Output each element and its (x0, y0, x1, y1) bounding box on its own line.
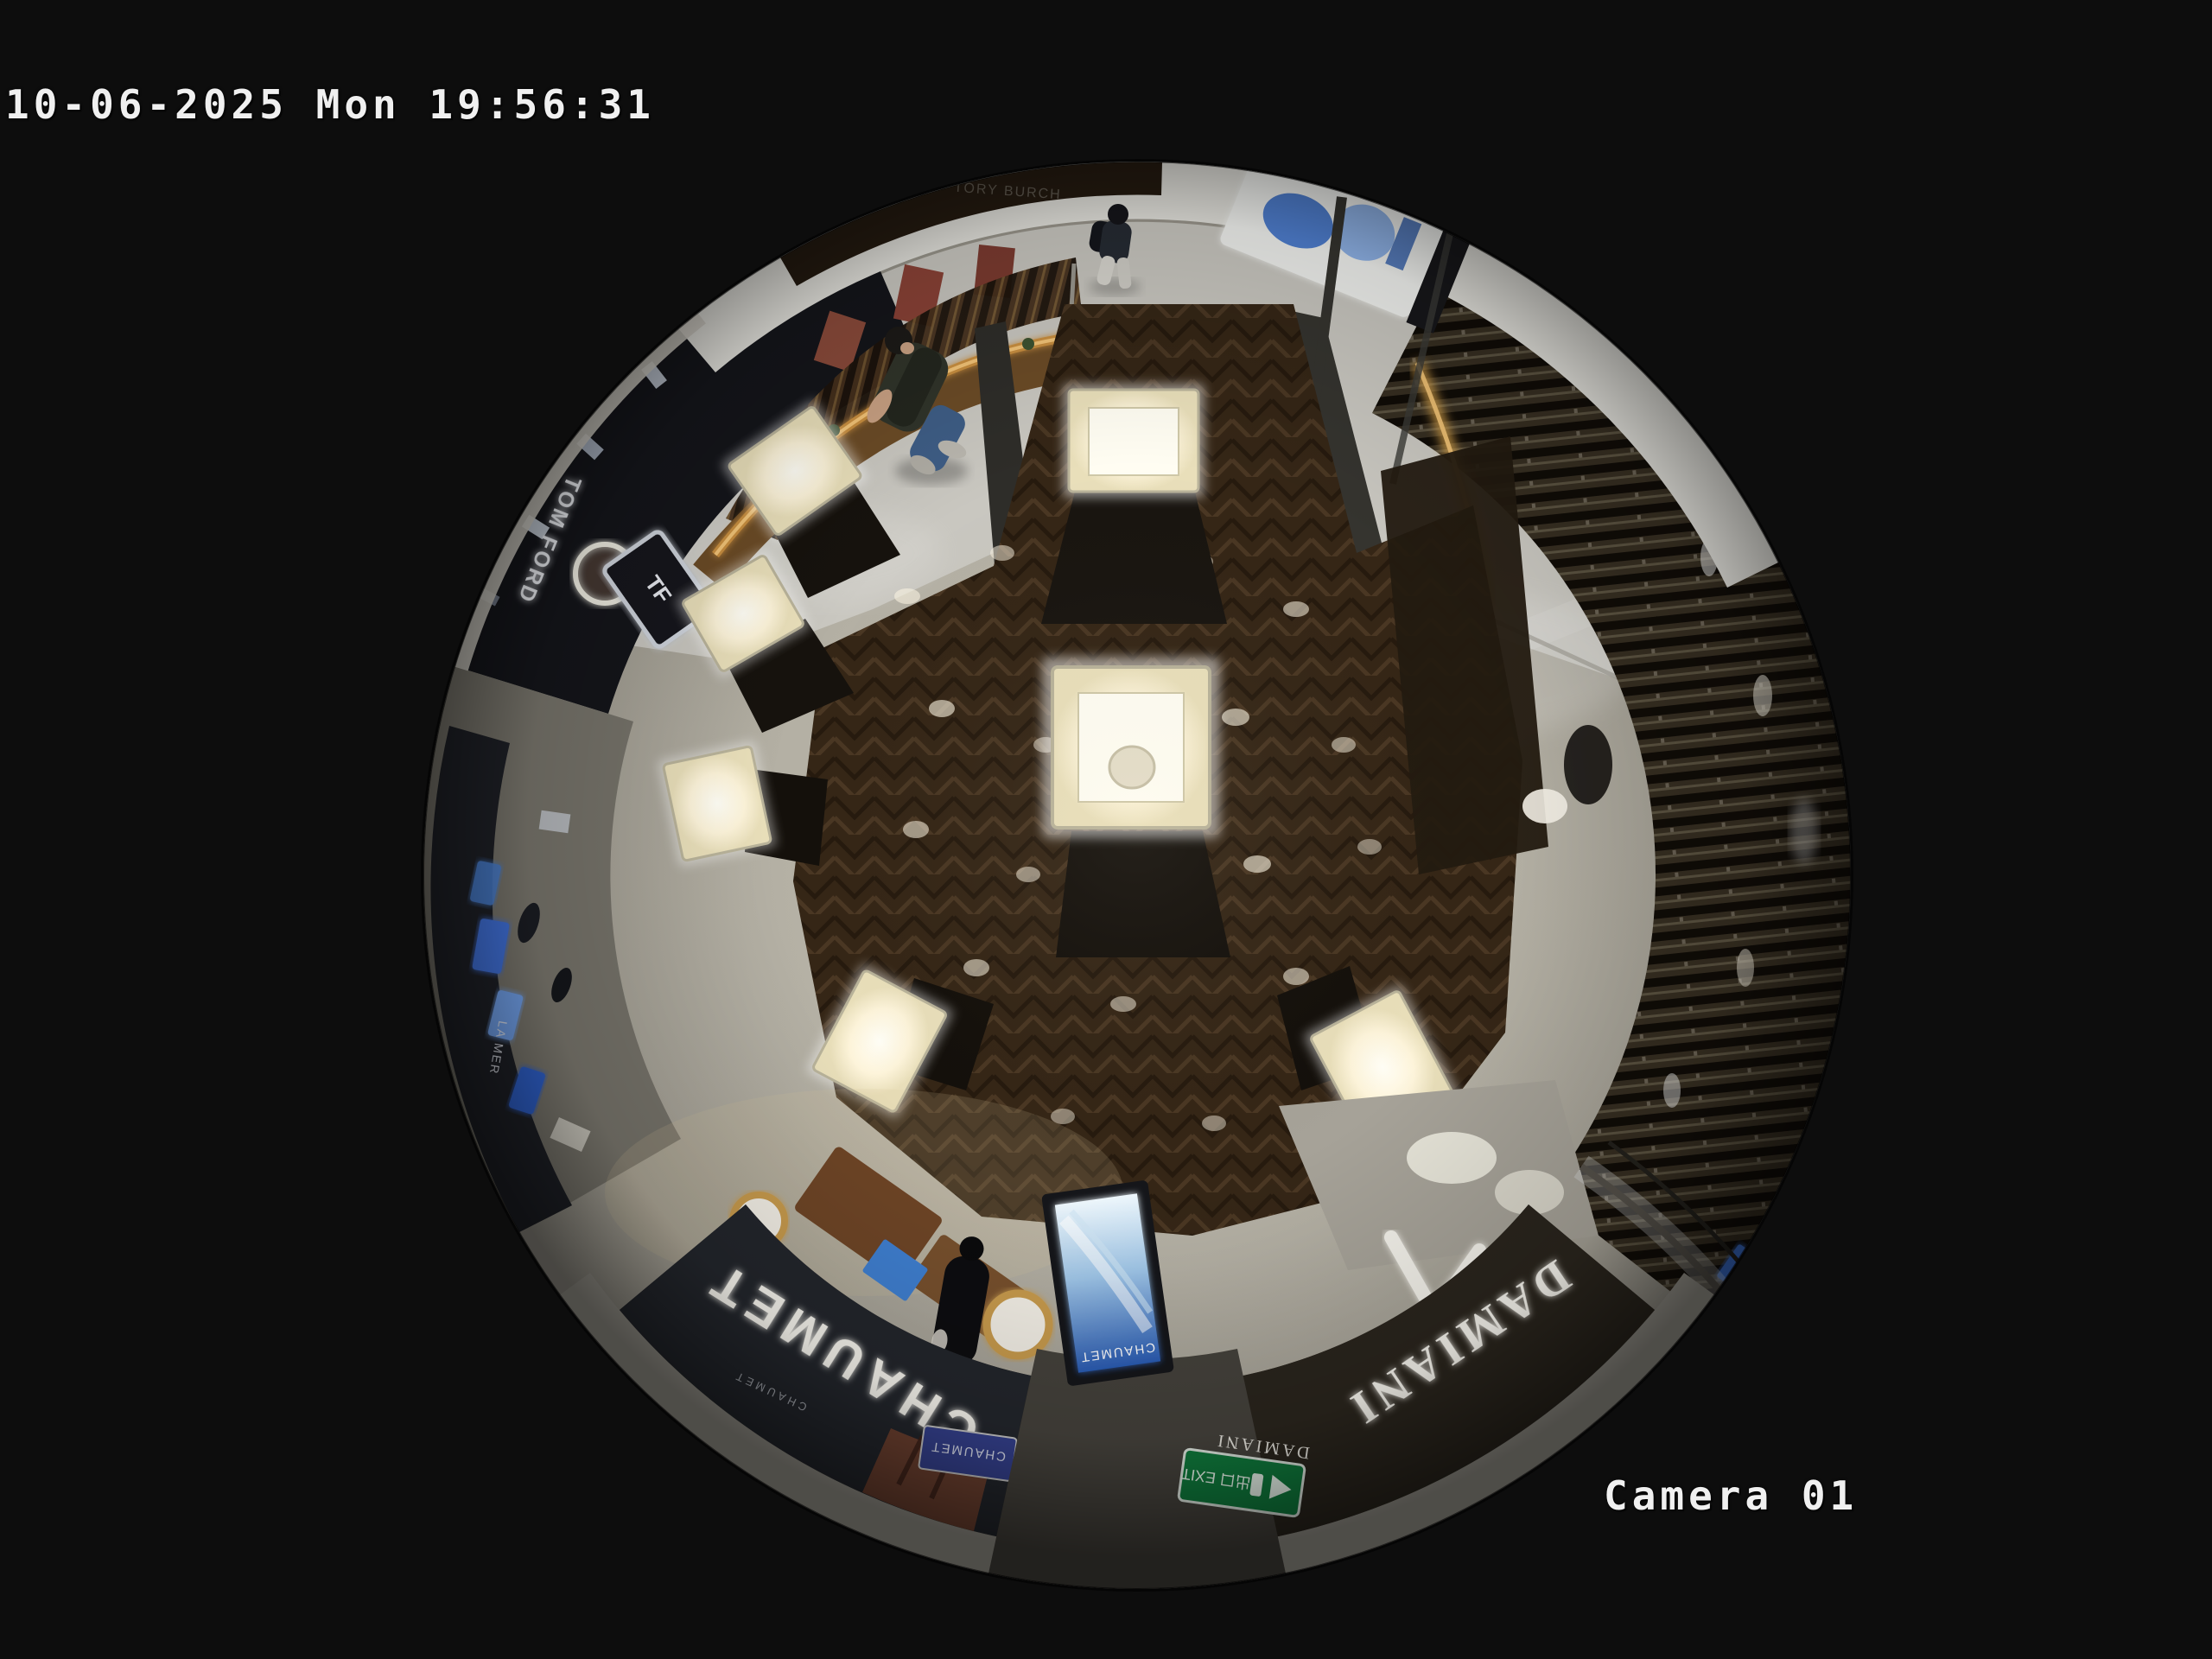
fisheye-view: TF TOM FORD LA MER (0, 0, 2212, 1659)
osd-camera-label: Camera 01 (1604, 1472, 1858, 1519)
cctv-frame: TF TOM FORD LA MER (0, 0, 2212, 1659)
lens-vignette (422, 160, 1853, 1591)
osd-timestamp: 10-06-2025 Mon 19:56:31 (5, 81, 655, 128)
